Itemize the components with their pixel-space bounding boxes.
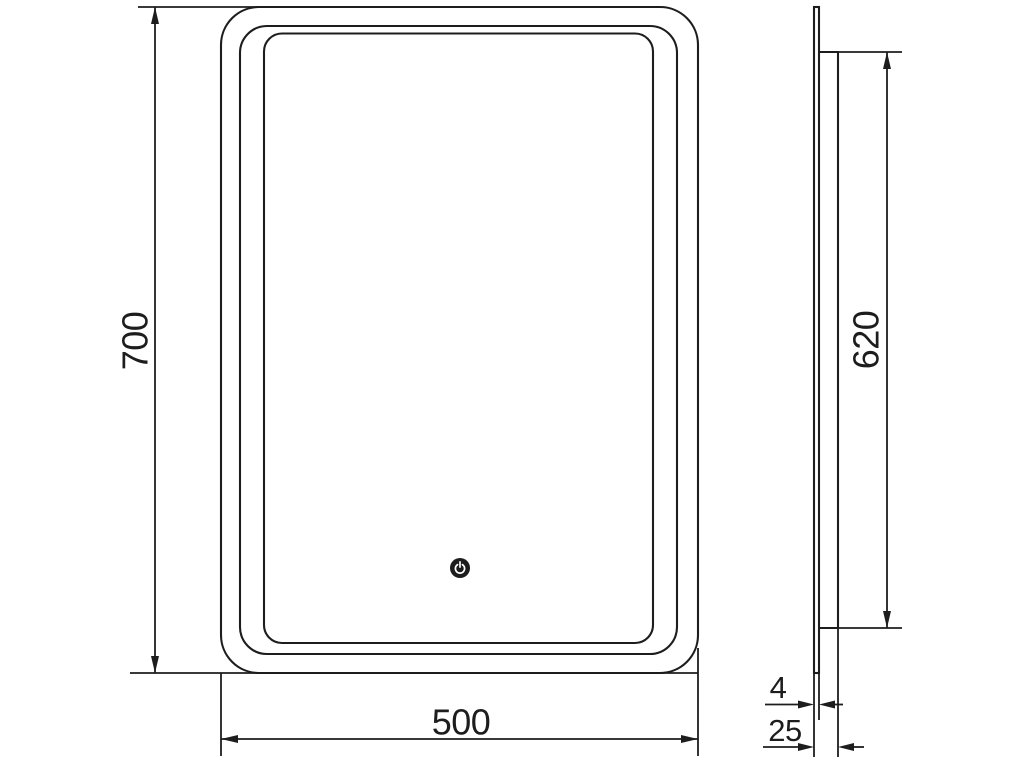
front-view (221, 7, 698, 673)
drawing-svg: 700 500 620 4 25 (0, 0, 1024, 768)
arrowheads (151, 7, 891, 751)
arrow-left-icon (221, 735, 238, 743)
linework (130, 7, 902, 757)
glass-thickness-label: 4 (770, 670, 787, 705)
arrow-right-icon (681, 735, 698, 743)
arrow-up-icon (883, 52, 891, 69)
front-height-label: 700 (115, 312, 156, 371)
arrow-left-icon (838, 743, 854, 751)
touch-power-button (450, 558, 470, 578)
housing-profile (819, 52, 838, 628)
side-view (814, 7, 838, 673)
power-button-disc (450, 558, 470, 578)
arrow-up-icon (151, 7, 159, 24)
dimension-front-height (130, 7, 698, 673)
dimension-labels: 700 500 620 4 25 (115, 311, 887, 748)
arrow-down-icon (883, 611, 891, 628)
arrow-left-icon (819, 701, 835, 709)
side-height-label: 620 (846, 311, 887, 370)
arrow-right-icon (798, 701, 814, 709)
glass-profile (814, 7, 819, 673)
arrow-down-icon (151, 656, 159, 673)
total-depth-label: 25 (768, 713, 801, 748)
led-strip-inner-edge (264, 34, 653, 644)
mirror-dimension-drawing: 700 500 620 4 25 (0, 0, 1024, 768)
front-width-label: 500 (432, 702, 491, 743)
